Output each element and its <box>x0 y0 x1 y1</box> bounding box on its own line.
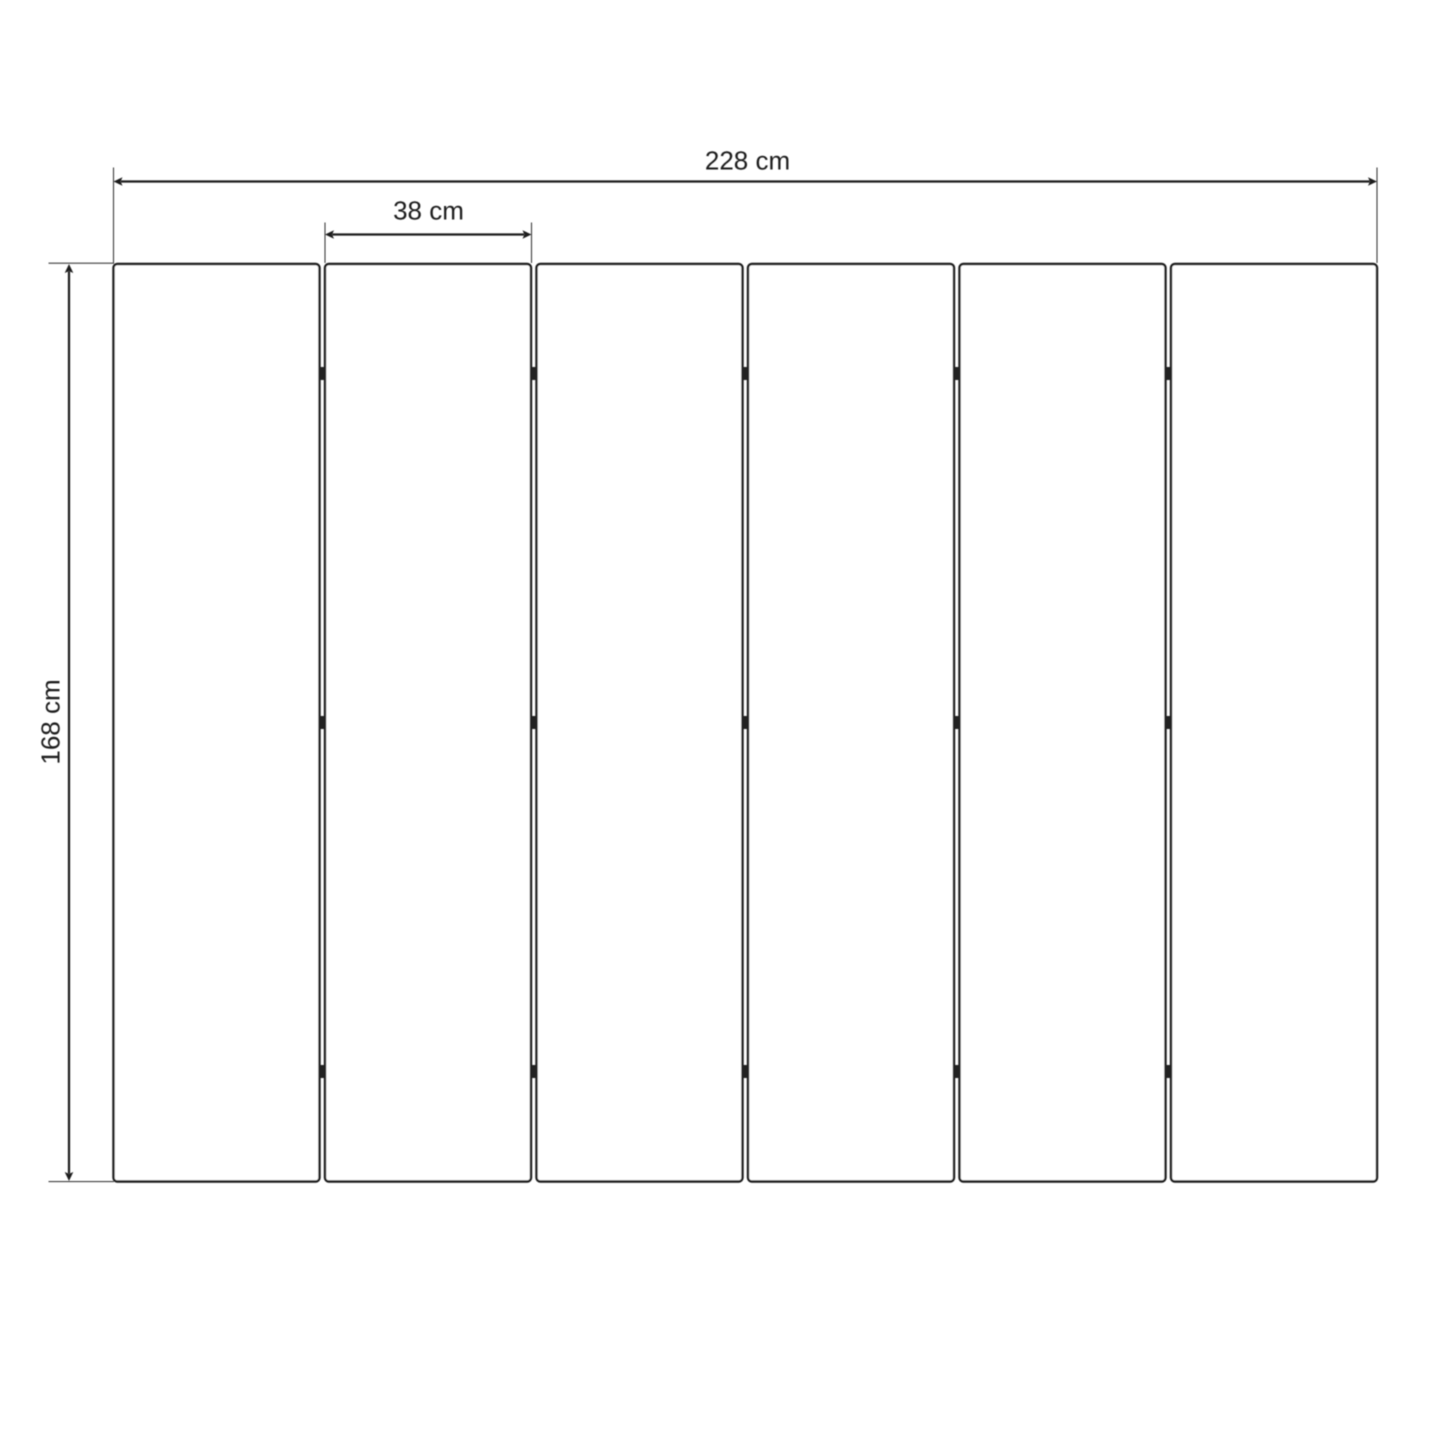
svg-text:168 cm: 168 cm <box>36 679 66 764</box>
svg-text:38 cm: 38 cm <box>393 196 464 226</box>
svg-text:228 cm: 228 cm <box>705 146 790 176</box>
